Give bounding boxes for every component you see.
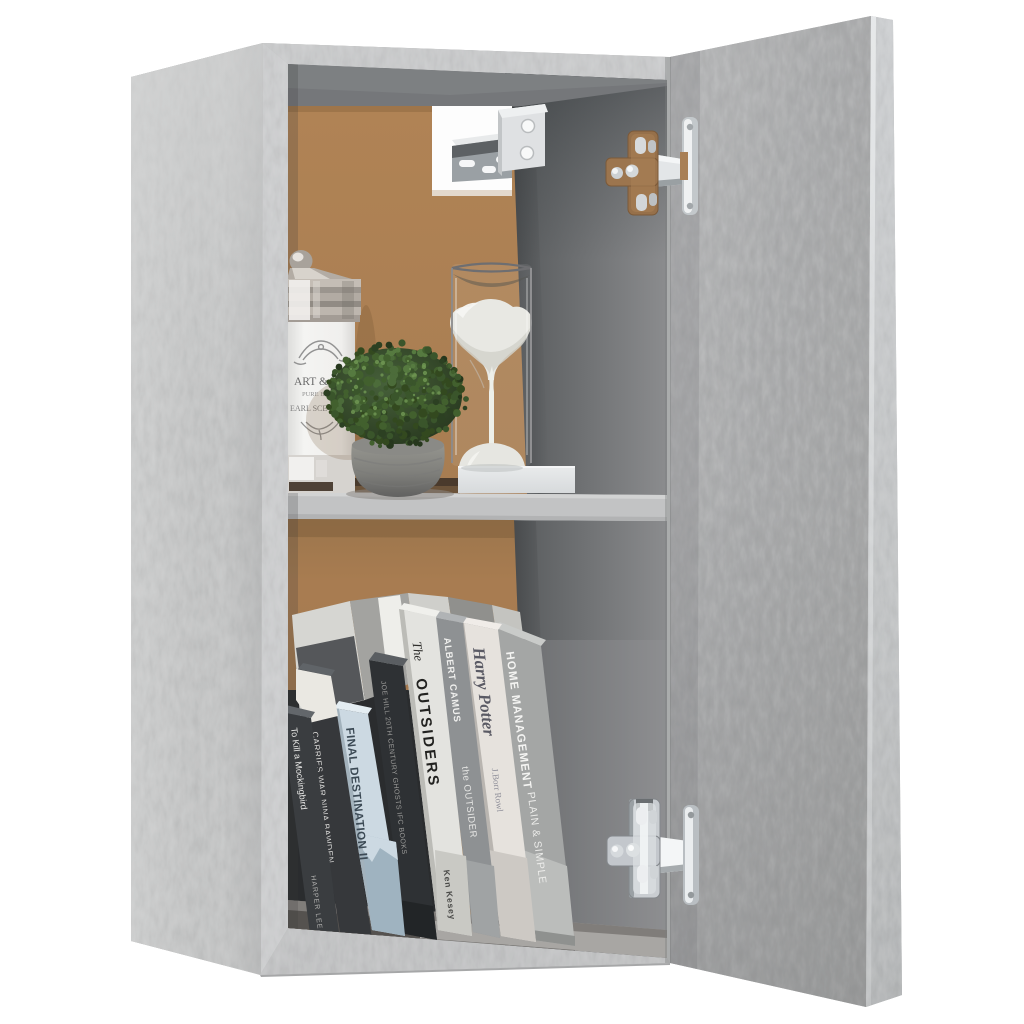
svg-text:The: The: [409, 641, 426, 662]
